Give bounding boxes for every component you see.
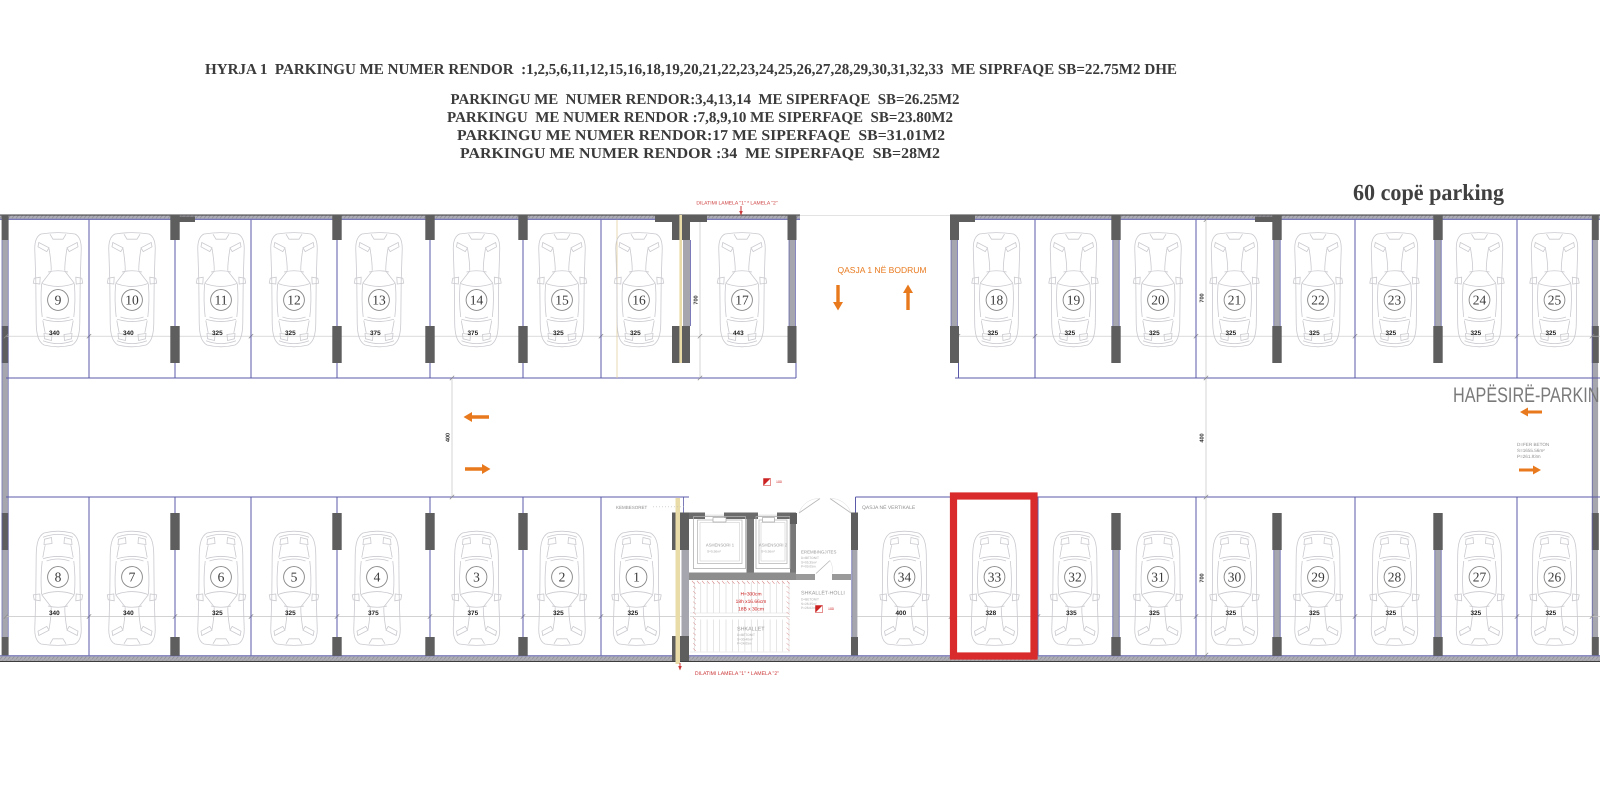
svg-text:PARKINGU ME NUMER RENDOR:17 ME: PARKINGU ME NUMER RENDOR:17 ME SIPERFAQE… bbox=[457, 128, 945, 144]
svg-text:340: 340 bbox=[123, 610, 134, 617]
svg-text:28: 28 bbox=[1388, 570, 1402, 585]
svg-text:2: 2 bbox=[559, 570, 566, 585]
svg-text:5: 5 bbox=[291, 570, 298, 585]
svg-text:400: 400 bbox=[1200, 433, 1206, 442]
svg-text:S=5.56m²: S=5.56m² bbox=[707, 550, 721, 554]
svg-text:7: 7 bbox=[129, 570, 136, 585]
svg-text:PARKINGU ME NUMER RENDOR :7,8: PARKINGU ME NUMER RENDOR :7,8,9,10 ME SI… bbox=[447, 110, 953, 126]
svg-text:325: 325 bbox=[285, 610, 296, 617]
svg-text:325: 325 bbox=[630, 330, 641, 337]
svg-text:14: 14 bbox=[470, 293, 484, 308]
svg-text:21: 21 bbox=[1228, 293, 1242, 308]
svg-text:29: 29 bbox=[1311, 570, 1325, 585]
svg-text:375: 375 bbox=[468, 330, 479, 337]
svg-text:11: 11 bbox=[215, 293, 228, 308]
svg-text:15: 15 bbox=[555, 293, 569, 308]
svg-text:34: 34 bbox=[898, 570, 912, 585]
svg-text:HYRJA 1 PARKINGU ME NUMER REN: HYRJA 1 PARKINGU ME NUMER RENDOR :1,2,5,… bbox=[205, 61, 1177, 78]
svg-text:325: 325 bbox=[1226, 610, 1237, 617]
svg-text:23: 23 bbox=[1388, 293, 1402, 308]
svg-text:33: 33 bbox=[988, 570, 1002, 585]
svg-text:325: 325 bbox=[553, 610, 564, 617]
svg-text:17: 17 bbox=[735, 293, 749, 308]
svg-text:18h x16.66cm: 18h x16.66cm bbox=[736, 599, 767, 605]
svg-text:DILATIMI LAMELA "1" * LAMELA ": DILATIMI LAMELA "1" * LAMELA "2" bbox=[695, 671, 779, 677]
svg-text:325: 325 bbox=[212, 330, 223, 337]
svg-text:325: 325 bbox=[1149, 610, 1160, 617]
svg-text:443: 443 bbox=[733, 330, 744, 337]
svg-text:700: 700 bbox=[694, 295, 700, 304]
svg-text:13: 13 bbox=[372, 293, 386, 308]
svg-text:325: 325 bbox=[1386, 330, 1397, 337]
svg-text:60 copë parking: 60 copë parking bbox=[1353, 180, 1504, 206]
svg-text:ASHENSORI 1: ASHENSORI 1 bbox=[706, 543, 735, 548]
svg-text:325: 325 bbox=[1471, 610, 1482, 617]
svg-text:S=1655.56m²: S=1655.56m² bbox=[1517, 448, 1545, 453]
svg-text:375: 375 bbox=[370, 330, 381, 337]
svg-text:8: 8 bbox=[55, 570, 62, 585]
svg-text:375: 375 bbox=[468, 610, 479, 617]
svg-text:P=28.02m: P=28.02m bbox=[801, 606, 816, 610]
svg-text:QASJA NË VERTIKALE: QASJA NË VERTIKALE bbox=[862, 504, 916, 511]
svg-text:6: 6 bbox=[218, 570, 225, 585]
svg-text:4: 4 bbox=[374, 570, 381, 585]
svg-text:SHKALLET: SHKALLET bbox=[737, 627, 765, 633]
svg-text:PARKINGU ME NUMER RENDOR:3,4,: PARKINGU ME NUMER RENDOR:3,4,13,14 ME SI… bbox=[451, 92, 960, 108]
svg-text:325: 325 bbox=[285, 330, 296, 337]
svg-text:P=261.83m: P=261.83m bbox=[1517, 454, 1541, 459]
svg-text:325: 325 bbox=[553, 330, 564, 337]
svg-text:9: 9 bbox=[55, 293, 62, 308]
svg-text:325: 325 bbox=[1386, 610, 1397, 617]
svg-text:KEMBESORET: KEMBESORET bbox=[616, 505, 648, 510]
svg-text:325: 325 bbox=[1065, 330, 1076, 337]
svg-text:400: 400 bbox=[896, 610, 907, 617]
svg-text:31: 31 bbox=[1151, 570, 1165, 585]
svg-text:EREMBINGJITES: EREMBINGJITES bbox=[801, 550, 836, 555]
svg-text:P=24.05m: P=24.05m bbox=[737, 642, 752, 646]
svg-text:32: 32 bbox=[1068, 570, 1082, 585]
svg-text:325: 325 bbox=[988, 330, 999, 337]
svg-text:16: 16 bbox=[632, 293, 646, 308]
svg-text:SHKALLËT-HOLLI: SHKALLËT-HOLLI bbox=[801, 590, 845, 597]
svg-text:26: 26 bbox=[1548, 570, 1562, 585]
svg-text:18B x 30cm: 18B x 30cm bbox=[738, 607, 764, 613]
svg-text:3: 3 bbox=[473, 570, 480, 585]
svg-text:700: 700 bbox=[1200, 573, 1206, 582]
svg-text:PARKINGU ME NUMER RENDOR :34: PARKINGU ME NUMER RENDOR :34 ME SIPERFAQ… bbox=[460, 146, 940, 162]
svg-text:P=09.05m: P=09.05m bbox=[801, 565, 816, 569]
svg-text:22: 22 bbox=[1311, 293, 1325, 308]
svg-text:18: 18 bbox=[990, 293, 1004, 308]
svg-text:24: 24 bbox=[1473, 293, 1487, 308]
svg-text:10: 10 bbox=[125, 293, 139, 308]
svg-text:325: 325 bbox=[212, 610, 223, 617]
svg-text:325: 325 bbox=[1226, 330, 1237, 337]
svg-text:335: 335 bbox=[1066, 610, 1077, 617]
svg-text:S=5.56m²: S=5.56m² bbox=[761, 550, 775, 554]
svg-text:340: 340 bbox=[123, 330, 134, 337]
svg-text:HAPËSIRË-PARKINGJE: HAPËSIRË-PARKINGJE bbox=[1453, 384, 1600, 407]
svg-text:20: 20 bbox=[1151, 293, 1165, 308]
svg-text:325: 325 bbox=[1546, 330, 1557, 337]
svg-text:340: 340 bbox=[49, 330, 60, 337]
svg-text:12: 12 bbox=[287, 293, 301, 308]
svg-text:100: 100 bbox=[828, 607, 834, 611]
svg-text:27: 27 bbox=[1473, 570, 1487, 585]
svg-text:400: 400 bbox=[446, 433, 452, 442]
svg-text:D=FER BETON: D=FER BETON bbox=[1517, 442, 1549, 447]
svg-text:ASHENSORI 2: ASHENSORI 2 bbox=[759, 543, 788, 548]
svg-text:325: 325 bbox=[1471, 330, 1482, 337]
svg-text:H=300cm: H=300cm bbox=[740, 592, 761, 598]
svg-text:325: 325 bbox=[1309, 610, 1320, 617]
svg-text:30: 30 bbox=[1228, 570, 1242, 585]
svg-text:19: 19 bbox=[1067, 293, 1081, 308]
svg-text:25: 25 bbox=[1548, 293, 1562, 308]
svg-text:100: 100 bbox=[776, 480, 782, 484]
svg-text:QASJA 1 NË BODRUM: QASJA 1 NË BODRUM bbox=[838, 265, 927, 275]
svg-text:DILATIMI LAMELA "1" * LAMELA ": DILATIMI LAMELA "1" * LAMELA "2" bbox=[696, 201, 777, 207]
svg-text:325: 325 bbox=[1309, 330, 1320, 337]
svg-text:340: 340 bbox=[49, 610, 60, 617]
svg-text:328: 328 bbox=[986, 610, 997, 617]
svg-text:375: 375 bbox=[368, 610, 379, 617]
svg-text:325: 325 bbox=[1546, 610, 1557, 617]
svg-text:325: 325 bbox=[1149, 330, 1160, 337]
svg-text:700: 700 bbox=[1200, 293, 1206, 302]
svg-text:325: 325 bbox=[628, 610, 639, 617]
svg-text:1: 1 bbox=[633, 570, 640, 585]
